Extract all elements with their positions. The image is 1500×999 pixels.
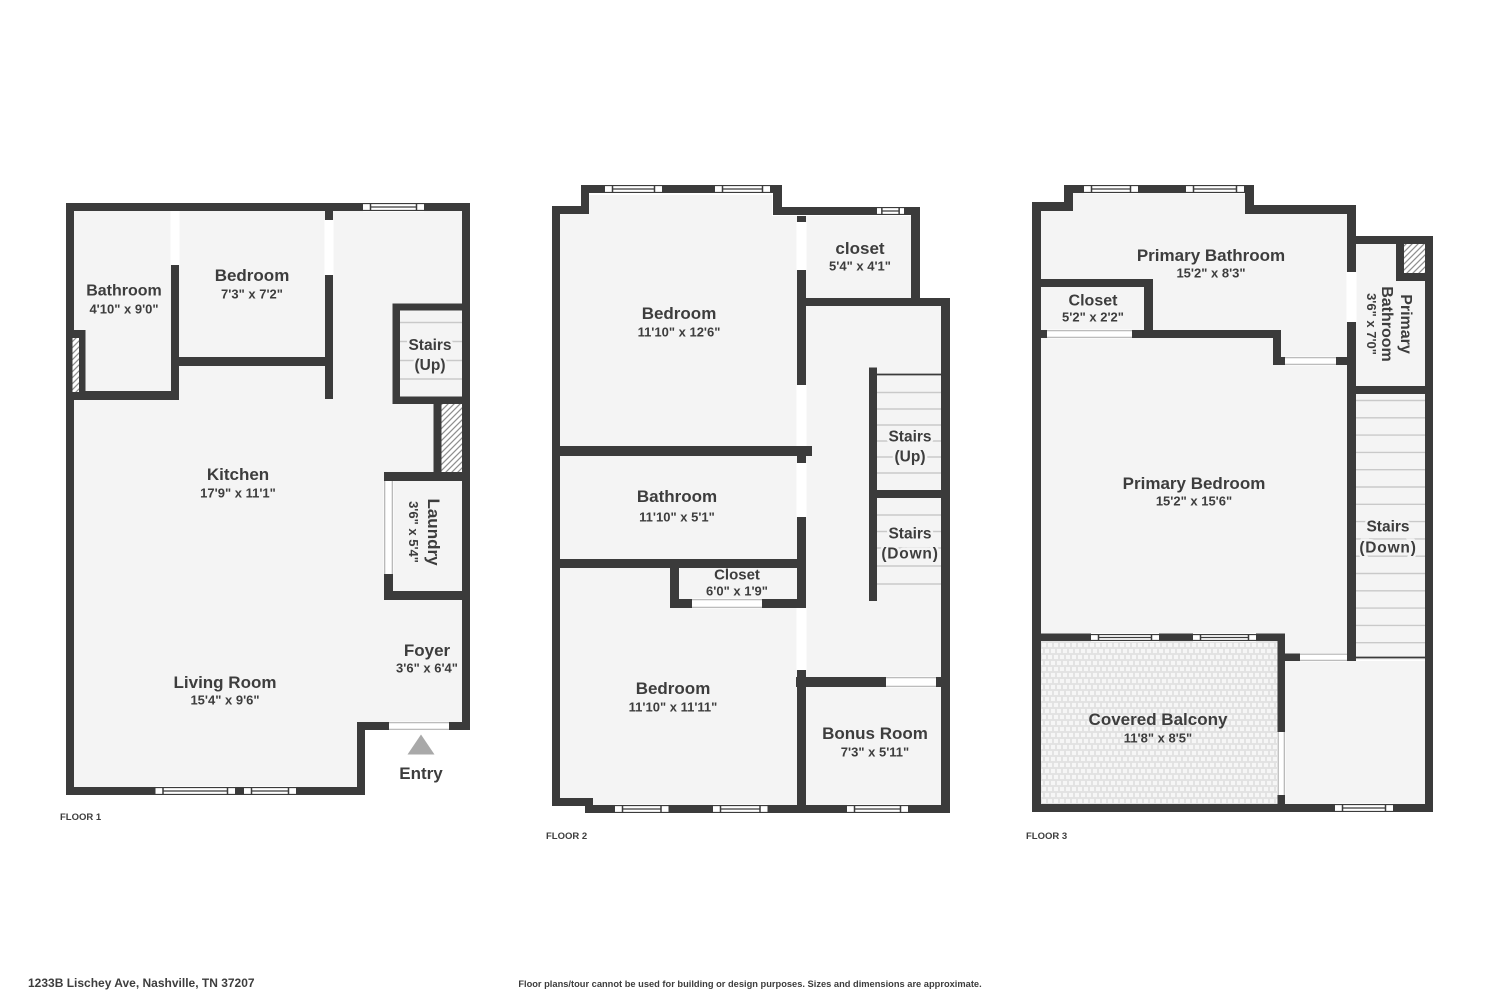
svg-text:Bathroom: Bathroom <box>86 283 162 300</box>
svg-text:3'6" x 5'4": 3'6" x 5'4" <box>406 501 421 563</box>
svg-text:Kitchen: Kitchen <box>207 465 269 484</box>
svg-text:6'0" x 1'9": 6'0" x 1'9" <box>706 584 768 599</box>
svg-text:closet: closet <box>835 239 884 258</box>
svg-text:Primary: Primary <box>1397 294 1414 354</box>
svg-text:5'2" x 2'2": 5'2" x 2'2" <box>1062 310 1124 325</box>
svg-text:7'3" x 7'2": 7'3" x 7'2" <box>221 287 283 302</box>
svg-text:7'3" x 5'11": 7'3" x 5'11" <box>841 745 909 760</box>
svg-text:Bedroom: Bedroom <box>642 304 717 323</box>
svg-text:Primary Bathroom: Primary Bathroom <box>1137 246 1285 265</box>
svg-text:Living Room: Living Room <box>174 673 277 692</box>
svg-text:15'4" x 9'6": 15'4" x 9'6" <box>190 693 259 708</box>
svg-text:Stairs: Stairs <box>1366 519 1409 536</box>
svg-text:(Up): (Up) <box>415 357 446 374</box>
svg-text:(Up): (Up) <box>895 449 926 466</box>
svg-text:Stairs: Stairs <box>408 337 451 354</box>
svg-text:Bedroom: Bedroom <box>215 266 290 285</box>
svg-text:5'4" x 4'1": 5'4" x 4'1" <box>829 259 891 274</box>
svg-text:Stairs: Stairs <box>888 429 931 446</box>
svg-text:Closet: Closet <box>1069 293 1119 310</box>
svg-text:(Down): (Down) <box>881 546 938 563</box>
svg-text:Floor plans/tour cannot be use: Floor plans/tour cannot be used for buil… <box>518 979 981 989</box>
svg-text:Entry: Entry <box>399 764 443 783</box>
svg-text:Bonus Room: Bonus Room <box>822 724 928 743</box>
svg-text:FLOOR 1: FLOOR 1 <box>60 812 102 823</box>
svg-text:1233B Lischey Ave, Nashville,: 1233B Lischey Ave, Nashville, TN 37207 <box>28 976 255 990</box>
svg-text:Laundry: Laundry <box>424 498 443 566</box>
svg-text:3'6" x 7'0": 3'6" x 7'0" <box>1364 293 1379 355</box>
svg-text:4'10" x 9'0": 4'10" x 9'0" <box>89 302 158 317</box>
svg-text:Foyer: Foyer <box>404 641 451 660</box>
svg-text:Bathroom: Bathroom <box>1378 286 1395 362</box>
svg-text:11'8" x 8'5": 11'8" x 8'5" <box>1124 731 1192 746</box>
svg-text:3'6" x 6'4": 3'6" x 6'4" <box>396 661 458 676</box>
svg-text:15'2" x 15'6": 15'2" x 15'6" <box>1156 494 1232 509</box>
svg-text:15'2" x 8'3": 15'2" x 8'3" <box>1176 266 1245 281</box>
svg-text:Stairs: Stairs <box>888 526 931 543</box>
svg-text:11'10" x 11'11": 11'10" x 11'11" <box>629 700 718 715</box>
svg-text:Bathroom: Bathroom <box>637 487 717 506</box>
svg-text:Closet: Closet <box>714 566 760 583</box>
svg-text:Primary Bedroom: Primary Bedroom <box>1123 474 1266 493</box>
svg-text:FLOOR 3: FLOOR 3 <box>1026 831 1067 842</box>
svg-text:(Down): (Down) <box>1359 540 1416 557</box>
svg-text:Bedroom: Bedroom <box>636 679 711 698</box>
svg-text:17'9" x 11'1": 17'9" x 11'1" <box>200 486 276 501</box>
svg-text:Covered Balcony: Covered Balcony <box>1089 710 1228 729</box>
svg-text:11'10" x 5'1": 11'10" x 5'1" <box>639 510 715 525</box>
svg-text:FLOOR 2: FLOOR 2 <box>546 831 587 842</box>
svg-text:11'10" x 12'6": 11'10" x 12'6" <box>638 325 721 340</box>
